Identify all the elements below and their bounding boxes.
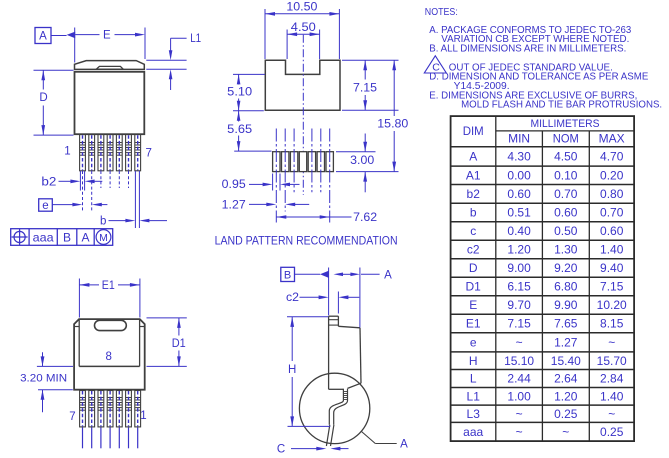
svg-text:4.50: 4.50 <box>554 150 578 164</box>
svg-text:b2: b2 <box>467 187 481 201</box>
svg-text:7.15: 7.15 <box>600 280 624 294</box>
svg-text:E: E <box>103 30 111 42</box>
svg-text:MILLIMETERS: MILLIMETERS <box>531 118 600 130</box>
svg-text:1: 1 <box>140 410 146 422</box>
svg-text:1: 1 <box>64 146 70 158</box>
svg-text:A: A <box>469 150 477 164</box>
svg-text:1.40: 1.40 <box>600 390 624 404</box>
svg-text:0.25: 0.25 <box>554 407 578 421</box>
svg-text:0.70: 0.70 <box>554 187 578 201</box>
svg-text:1.20: 1.20 <box>507 243 531 257</box>
svg-text:e: e <box>42 200 48 212</box>
svg-text:0.20: 0.20 <box>600 169 624 183</box>
svg-text:L1: L1 <box>467 390 481 404</box>
svg-text:2.64: 2.64 <box>554 372 578 386</box>
svg-text:MOLD FLASH AND TIE BAR PROTRUS: MOLD FLASH AND TIE BAR PROTRUSIONS. <box>461 99 662 111</box>
svg-text:10.50: 10.50 <box>286 1 317 13</box>
svg-text:D: D <box>39 92 47 104</box>
svg-text:c2: c2 <box>286 292 299 304</box>
svg-text:A: A <box>384 269 392 281</box>
svg-text:9.20: 9.20 <box>554 261 578 275</box>
svg-text:1.27: 1.27 <box>554 336 578 350</box>
svg-text:9.40: 9.40 <box>600 261 624 275</box>
svg-text:E1: E1 <box>466 317 481 331</box>
svg-text:~: ~ <box>608 336 615 350</box>
svg-text:e: e <box>470 336 477 350</box>
svg-text:5.65: 5.65 <box>227 124 252 136</box>
svg-text:~: ~ <box>608 407 615 421</box>
svg-text:aaa: aaa <box>33 230 54 244</box>
svg-text:1.30: 1.30 <box>554 243 578 257</box>
svg-text:H: H <box>288 364 296 376</box>
svg-text:0.00: 0.00 <box>507 169 531 183</box>
svg-text:A1: A1 <box>466 169 481 183</box>
svg-text:5.10: 5.10 <box>227 87 252 99</box>
svg-text:0.60: 0.60 <box>507 187 531 201</box>
svg-text:MIN: MIN <box>508 134 530 146</box>
svg-text:3.20 MIN: 3.20 MIN <box>20 373 67 385</box>
svg-text:9.70: 9.70 <box>507 298 531 312</box>
svg-text:0.95: 0.95 <box>222 179 246 191</box>
svg-text:aaa: aaa <box>463 425 483 439</box>
svg-text:0.50: 0.50 <box>554 224 578 238</box>
svg-text:7: 7 <box>145 148 151 160</box>
svg-text:1.27: 1.27 <box>222 199 246 211</box>
svg-text:9.90: 9.90 <box>554 298 578 312</box>
svg-text:6.80: 6.80 <box>554 280 578 294</box>
svg-text:7.15: 7.15 <box>507 317 531 331</box>
svg-text:0.60: 0.60 <box>554 206 578 220</box>
svg-text:2.44: 2.44 <box>507 372 531 386</box>
svg-text:M: M <box>99 232 108 244</box>
svg-text:7.65: 7.65 <box>554 317 578 331</box>
svg-text:4.50: 4.50 <box>291 22 316 34</box>
svg-text:1.20: 1.20 <box>554 390 578 404</box>
svg-text:0.40: 0.40 <box>507 224 531 238</box>
svg-text:c: c <box>470 224 476 238</box>
svg-text:LAND PATTERN RECOMMENDATION: LAND PATTERN RECOMMENDATION <box>215 235 398 247</box>
svg-text:0.60: 0.60 <box>600 224 624 238</box>
svg-text:1.00: 1.00 <box>507 390 531 404</box>
svg-text:7: 7 <box>69 411 75 423</box>
svg-text:A: A <box>39 31 47 43</box>
svg-text:0.51: 0.51 <box>507 206 531 220</box>
svg-text:0.10: 0.10 <box>554 169 578 183</box>
svg-text:~: ~ <box>516 336 523 350</box>
svg-text:A: A <box>400 439 408 451</box>
svg-text:D1: D1 <box>172 338 186 350</box>
svg-text:1.40: 1.40 <box>600 243 624 257</box>
svg-text:D1: D1 <box>466 280 482 294</box>
svg-text:B: B <box>284 269 291 281</box>
svg-text:4.30: 4.30 <box>507 150 531 164</box>
svg-text:10.20: 10.20 <box>597 298 627 312</box>
svg-text:0.70: 0.70 <box>600 206 624 220</box>
svg-text:~: ~ <box>562 425 569 439</box>
svg-text:6.15: 6.15 <box>507 280 531 294</box>
svg-text:E: E <box>469 298 477 312</box>
svg-text:b: b <box>470 206 477 220</box>
svg-text:15.70: 15.70 <box>597 354 627 368</box>
svg-text:L: L <box>470 372 477 386</box>
svg-text:E1: E1 <box>102 280 115 292</box>
svg-text:15.10: 15.10 <box>504 354 534 368</box>
svg-text:7.15: 7.15 <box>353 82 377 94</box>
svg-text:L1: L1 <box>190 33 201 45</box>
svg-text:B: B <box>63 230 71 244</box>
svg-text:~: ~ <box>516 425 523 439</box>
svg-text:3.00: 3.00 <box>350 155 374 167</box>
svg-text:L3: L3 <box>467 407 481 421</box>
svg-text:7.62: 7.62 <box>353 212 377 224</box>
svg-text:DIM: DIM <box>463 126 484 138</box>
svg-text:8: 8 <box>105 351 111 363</box>
svg-text:A: A <box>81 230 89 244</box>
svg-text:4.70: 4.70 <box>600 150 624 164</box>
svg-text:15.80: 15.80 <box>377 119 408 131</box>
svg-text:0.25: 0.25 <box>600 425 624 439</box>
svg-text:B. ALL DIMENSIONS ARE IN MILLI: B. ALL DIMENSIONS ARE IN MILLIMETERS. <box>429 43 626 55</box>
svg-text:MAX: MAX <box>599 134 625 146</box>
svg-text:NOTES:: NOTES: <box>425 6 458 18</box>
svg-text:2.84: 2.84 <box>600 372 624 386</box>
svg-text:15.40: 15.40 <box>551 354 581 368</box>
svg-text:H: H <box>469 354 478 368</box>
svg-text:c2: c2 <box>467 243 480 257</box>
svg-text:D: D <box>469 261 478 275</box>
svg-text:~: ~ <box>516 407 523 421</box>
svg-text:0.80: 0.80 <box>600 187 624 201</box>
svg-text:8.15: 8.15 <box>600 317 624 331</box>
svg-text:NOM: NOM <box>553 134 579 146</box>
svg-text:b: b <box>100 215 106 227</box>
svg-text:C: C <box>277 443 285 455</box>
svg-text:b2: b2 <box>41 176 56 188</box>
svg-text:9.00: 9.00 <box>507 261 531 275</box>
